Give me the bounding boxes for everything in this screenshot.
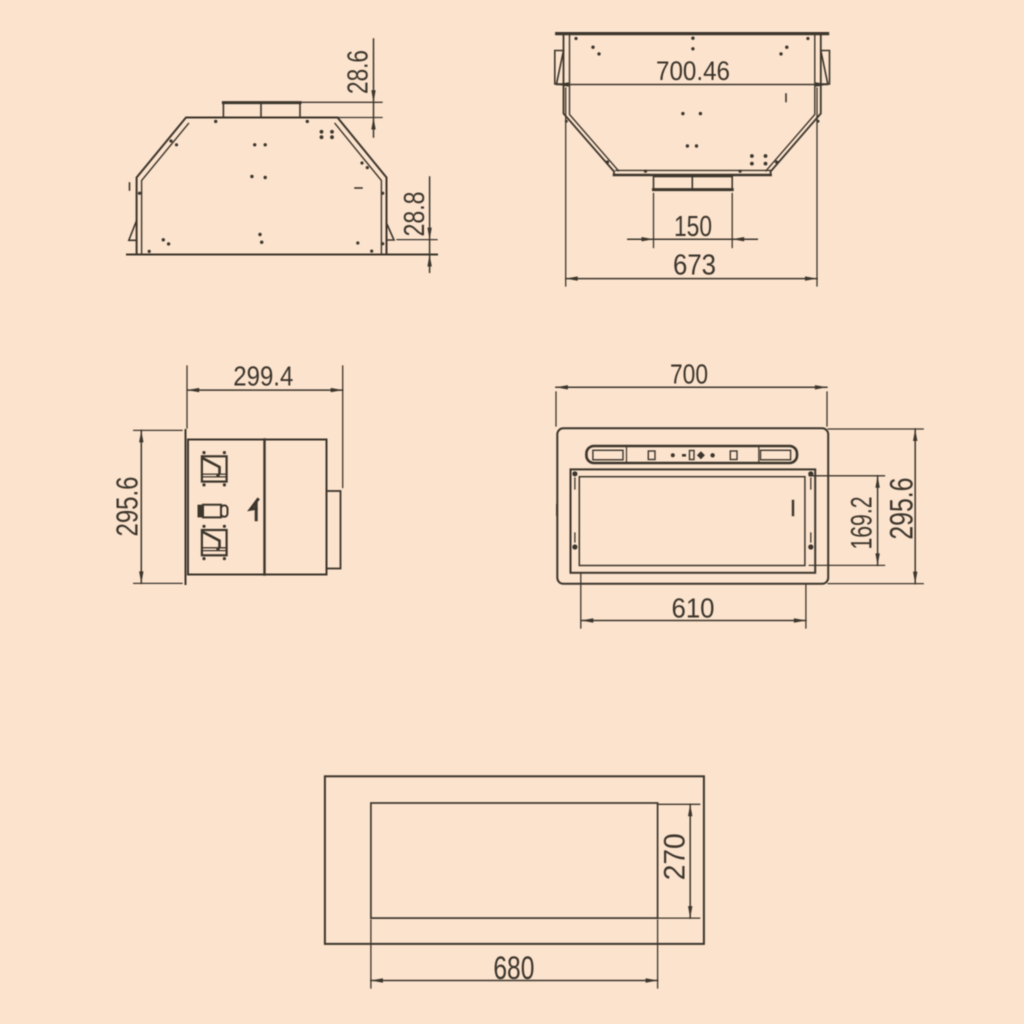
svg-text:28.6: 28.6 <box>343 50 375 94</box>
svg-text:150: 150 <box>674 211 712 243</box>
svg-text:295.6: 295.6 <box>883 478 919 540</box>
svg-text:673: 673 <box>673 250 716 282</box>
svg-text:295.6: 295.6 <box>110 477 145 537</box>
svg-text:700: 700 <box>670 359 708 390</box>
svg-text:610: 610 <box>672 593 715 624</box>
svg-text:270: 270 <box>659 833 692 880</box>
svg-text:700.46: 700.46 <box>656 56 730 86</box>
svg-text:28.8: 28.8 <box>399 192 431 237</box>
svg-text:299.4: 299.4 <box>233 361 293 392</box>
svg-text:680: 680 <box>493 950 534 986</box>
svg-text:169.2: 169.2 <box>846 497 879 550</box>
